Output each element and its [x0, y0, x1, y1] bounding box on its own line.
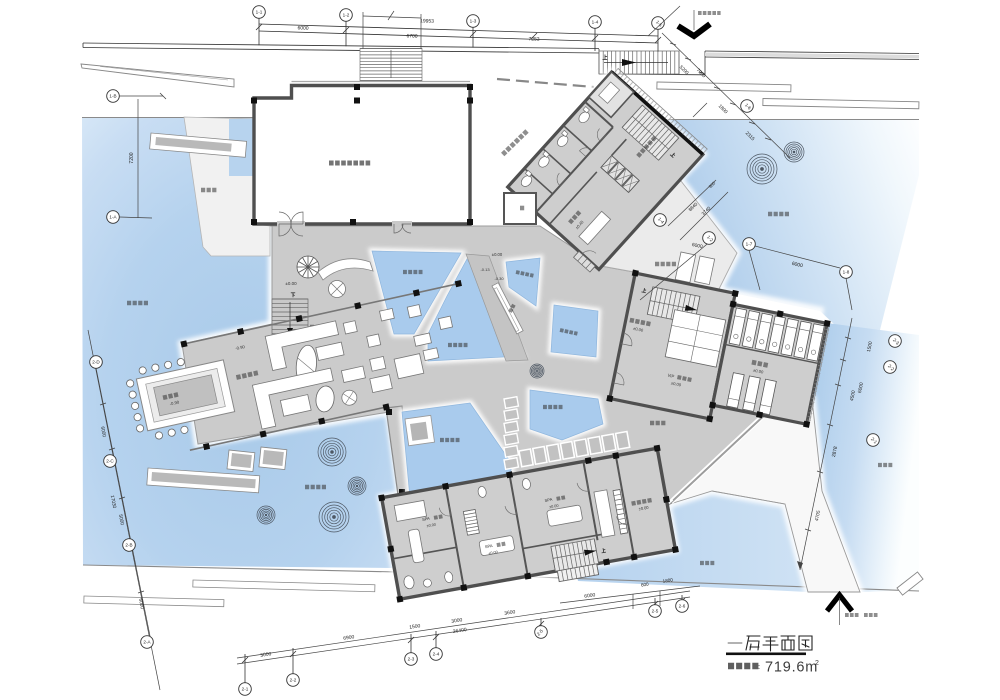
svg-text:2-2: 2-2	[290, 678, 297, 683]
svg-text:-0.30: -0.30	[494, 276, 504, 281]
svg-text:1-2: 1-2	[343, 13, 350, 18]
svg-text:7253: 7253	[528, 36, 540, 42]
svg-text::: :	[758, 662, 760, 671]
svg-text:1-3: 1-3	[470, 19, 477, 24]
svg-text:2-A: 2-A	[143, 640, 151, 645]
svg-text:2-1: 2-1	[242, 687, 249, 692]
svg-text:1-1: 1-1	[256, 10, 263, 15]
svg-text:1-4: 1-4	[592, 20, 599, 25]
svg-text:2-D: 2-D	[92, 360, 100, 365]
svg-text:7200: 7200	[129, 152, 135, 163]
svg-text:2-3: 2-3	[408, 657, 415, 662]
svg-text:1-B: 1-B	[109, 94, 116, 99]
svg-text:1-8: 1-8	[843, 270, 850, 275]
svg-text:2-B: 2-B	[125, 543, 132, 548]
svg-text:2-6: 2-6	[679, 604, 686, 609]
svg-text:6700: 6700	[406, 33, 418, 39]
svg-text:6000: 6000	[297, 25, 309, 31]
svg-text:2-C: 2-C	[106, 459, 114, 464]
svg-text:19953: 19953	[420, 18, 434, 24]
svg-text:719.6m: 719.6m	[765, 660, 818, 676]
svg-text:2-5: 2-5	[652, 609, 659, 614]
svg-text:2: 2	[815, 660, 819, 667]
svg-text:1-A: 1-A	[109, 215, 117, 220]
svg-text:1-7: 1-7	[746, 242, 753, 247]
svg-text:2-4: 2-4	[433, 652, 440, 657]
svg-text:±0.00: ±0.00	[285, 281, 297, 286]
svg-text:±0.00: ±0.00	[492, 252, 503, 257]
svg-text:-0.13: -0.13	[480, 267, 490, 272]
